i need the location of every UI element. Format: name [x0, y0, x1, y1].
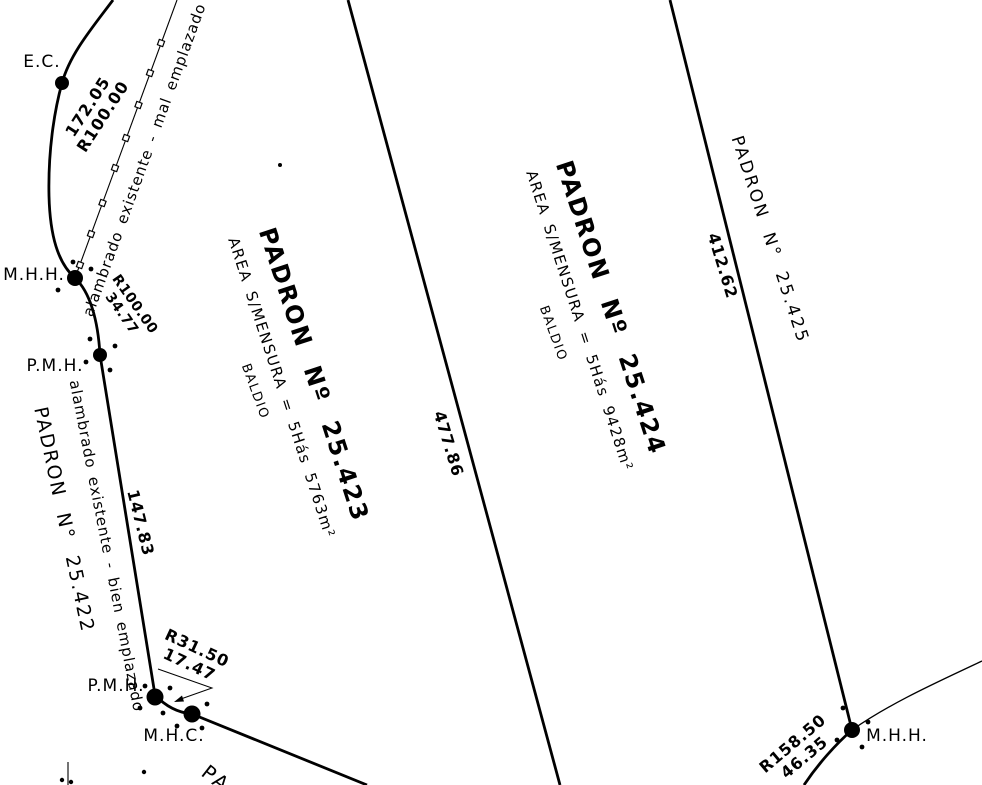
label-mhh-left: M.H.H.	[3, 266, 65, 286]
label-ec: E.C.	[23, 53, 60, 73]
curve-thin-bottom-right	[852, 661, 982, 730]
boundary-line-412	[670, 0, 852, 730]
label-mhc: M.H.C.	[143, 727, 204, 747]
monument-dot-mhh-left	[67, 270, 83, 286]
monument-dot-pmh-bottom	[147, 689, 164, 706]
survey-plan-canvas: E.C. M.H.H. P.M.H. P.M.H. M.H.C. M.H.H. …	[0, 0, 982, 785]
monument-dot-mhh-bottom-right	[844, 722, 860, 738]
leader-arrowhead	[174, 696, 184, 703]
monument-dot-ec	[55, 76, 69, 90]
monument-dot-mhc	[184, 706, 201, 723]
monument-dot-pmh-left	[93, 348, 107, 362]
boundary-line-477	[348, 0, 560, 785]
plan-geometry	[0, 0, 982, 785]
label-pmh-left: P.M.H.	[27, 357, 84, 377]
label-mhh-bottom-right: M.H.H.	[866, 727, 928, 747]
